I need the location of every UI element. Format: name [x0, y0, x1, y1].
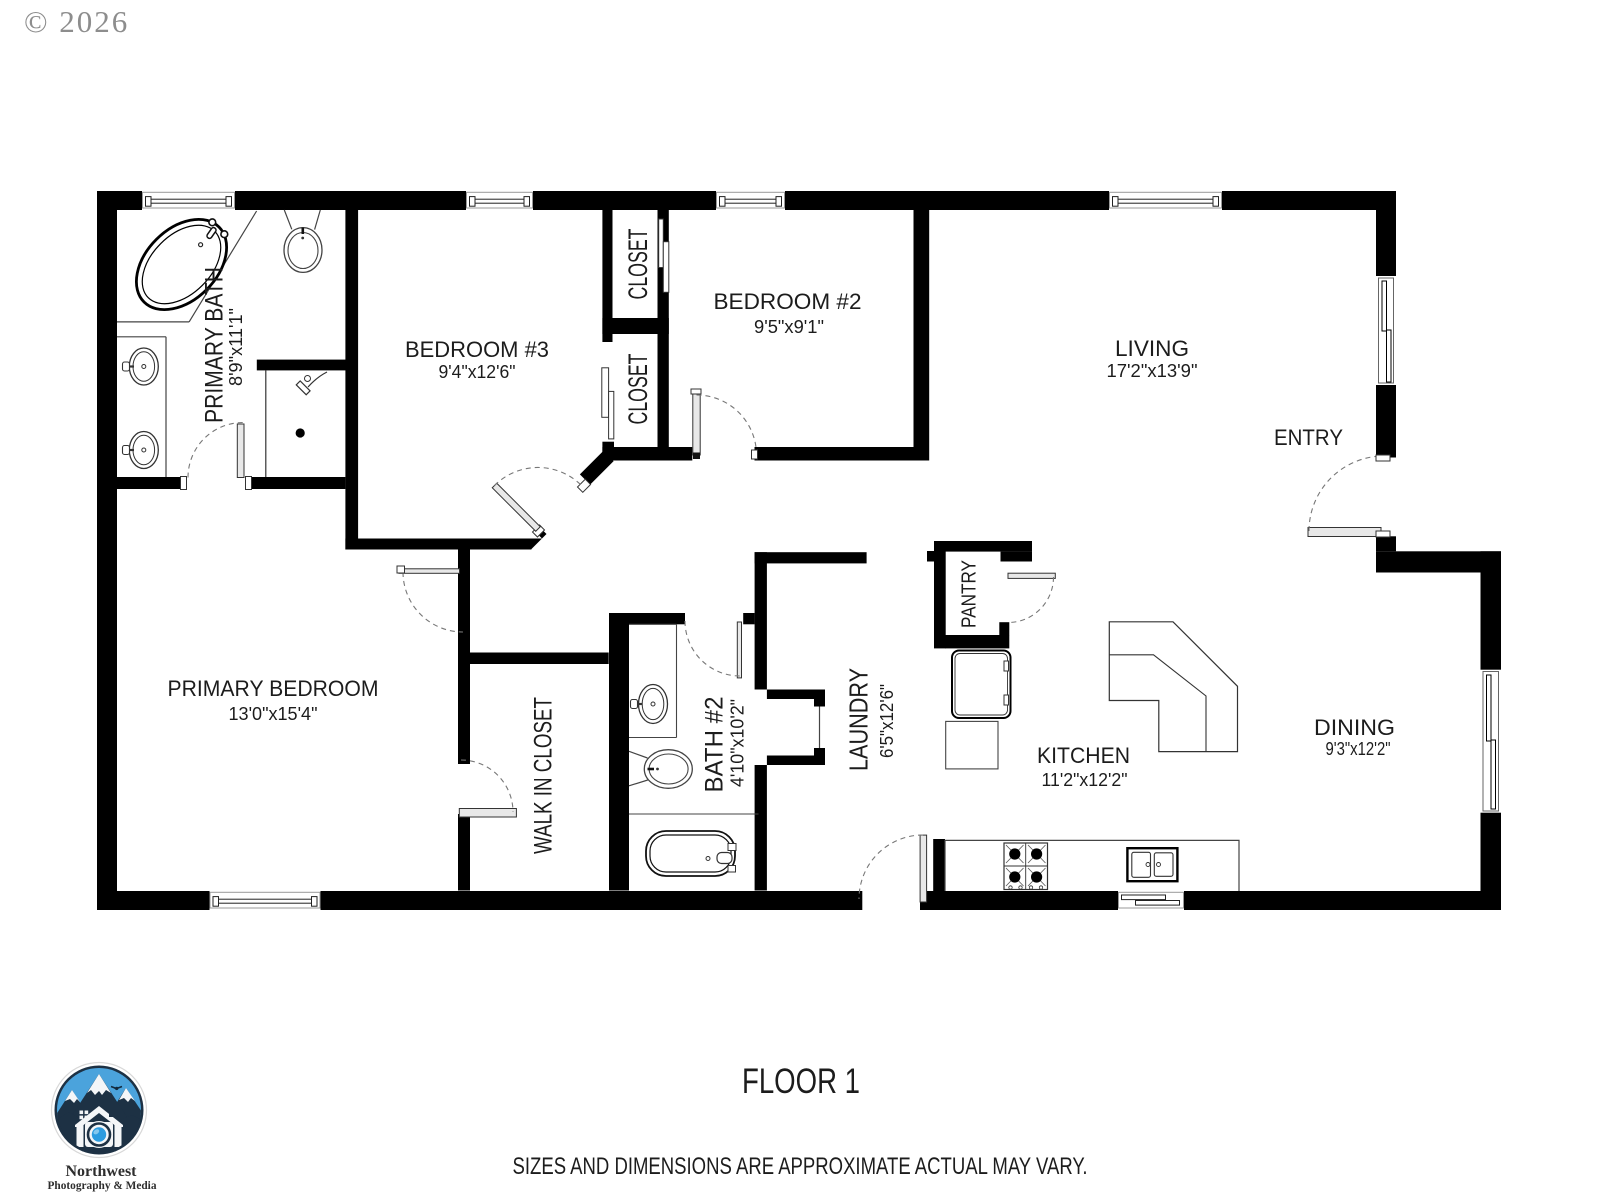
svg-text:LAUNDRY: LAUNDRY: [844, 668, 874, 771]
svg-text:9'4"x12'6": 9'4"x12'6": [439, 362, 516, 382]
svg-text:Photography & Media: Photography & Media: [48, 1178, 157, 1192]
svg-text:9'5"x9'1": 9'5"x9'1": [754, 317, 824, 337]
svg-text:WALK IN CLOSET: WALK IN CLOSET: [530, 697, 558, 854]
svg-text:BATH #2: BATH #2: [701, 697, 729, 793]
svg-text:© 2026: © 2026: [24, 4, 129, 39]
svg-text:6'5"x12'6": 6'5"x12'6": [877, 684, 897, 758]
svg-text:CLOSET: CLOSET: [623, 354, 653, 425]
svg-text:KITCHEN: KITCHEN: [1037, 743, 1130, 768]
svg-text:8'9"x11'1": 8'9"x11'1": [226, 308, 246, 386]
svg-text:17'2"x13'9": 17'2"x13'9": [1107, 361, 1198, 381]
svg-text:ENTRY: ENTRY: [1274, 425, 1343, 450]
svg-text:BEDROOM #2: BEDROOM #2: [714, 289, 862, 314]
svg-text:PRIMARY BEDROOM: PRIMARY BEDROOM: [168, 676, 379, 701]
svg-text:PANTRY: PANTRY: [959, 560, 981, 628]
svg-text:CLOSET: CLOSET: [623, 229, 653, 300]
svg-text:11'2"x12'2": 11'2"x12'2": [1042, 770, 1128, 790]
svg-text:SIZES AND DIMENSIONS ARE APPRO: SIZES AND DIMENSIONS ARE APPROXIMATE ACT…: [513, 1153, 1088, 1180]
svg-text:FLOOR 1: FLOOR 1: [742, 1062, 860, 1101]
svg-text:PRIMARY BATH: PRIMARY BATH: [201, 267, 229, 423]
svg-text:13'0"x15'4": 13'0"x15'4": [229, 704, 318, 724]
svg-text:9'3"x12'2": 9'3"x12'2": [1326, 739, 1391, 759]
svg-text:4'10"x10'2": 4'10"x10'2": [728, 699, 748, 787]
svg-text:BEDROOM #3: BEDROOM #3: [405, 337, 549, 362]
svg-text:DINING: DINING: [1314, 715, 1395, 740]
svg-text:LIVING: LIVING: [1115, 336, 1189, 361]
